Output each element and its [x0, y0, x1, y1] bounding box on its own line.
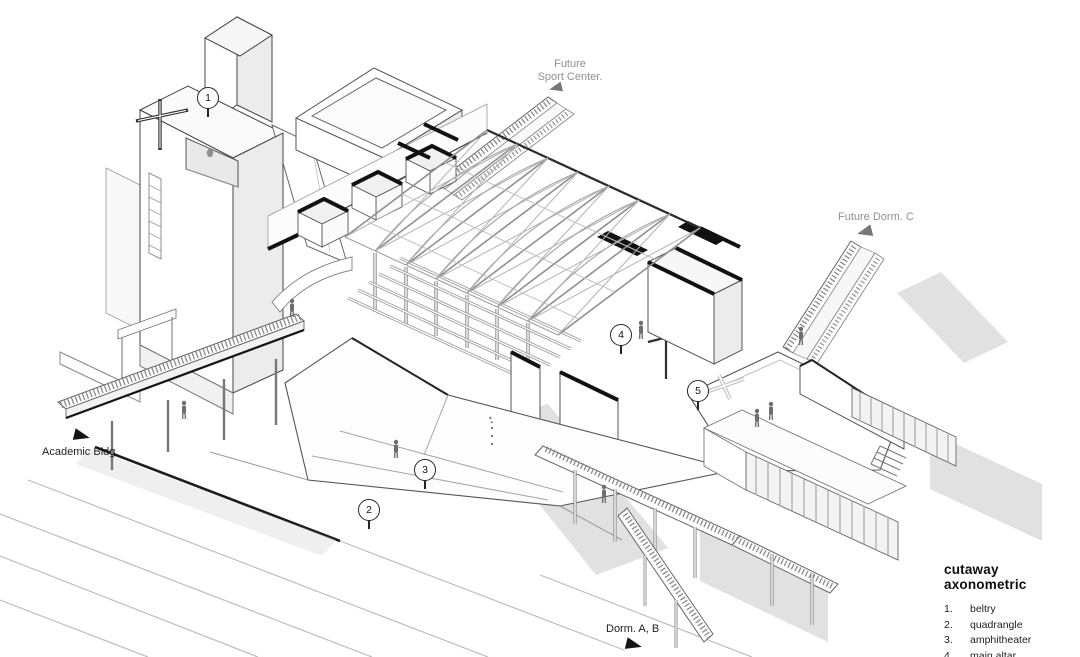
legend-item: 4. main altar	[944, 650, 1078, 657]
legend-item-number: 4.	[944, 650, 970, 657]
label-line: Dorm. A, B	[606, 623, 659, 635]
marker-number: 3	[422, 464, 428, 476]
callout-marker-quadrangle: 2	[358, 499, 380, 521]
legend-item-label: quadrangle	[970, 619, 1023, 631]
legend-item-label: main altar	[970, 650, 1016, 657]
sacristy-volume	[648, 248, 742, 364]
label-line: Future	[554, 58, 586, 70]
marker-number: 5	[695, 385, 701, 397]
label-future-sport-center: FutureSport Center.	[515, 58, 625, 84]
legend-item: 3. amphitheater	[944, 634, 1078, 646]
label-academic-bldg: Academic Bldg.	[42, 446, 118, 459]
legend-item-number: 2.	[944, 619, 970, 631]
tower-ladder	[149, 173, 161, 259]
label-line: Sport Center.	[538, 71, 603, 83]
callout-marker-main-altar: 4	[610, 324, 632, 346]
legend-item: 1. beltry	[944, 603, 1078, 615]
legend: cutaway axonometric 1. beltry 2. quadran…	[944, 562, 1078, 657]
bell-icon	[207, 149, 213, 157]
label-future-dorm-c: Future Dorm. C	[838, 211, 914, 224]
legend-item: 2. quadrangle	[944, 619, 1078, 631]
bridge-dorm-c	[783, 241, 884, 365]
callout-marker-amphitheater: 3	[414, 459, 436, 481]
legend-item-label: beltry	[970, 603, 996, 615]
axonometric-drawing	[0, 0, 1080, 657]
legend-item-number: 1.	[944, 603, 970, 615]
label-dorm-ab: Dorm. A, B	[606, 623, 659, 636]
marker-number: 2	[366, 504, 372, 516]
marker-number: 1	[205, 92, 211, 104]
label-line: Academic Bldg.	[42, 446, 118, 458]
legend-item-label: amphitheater	[970, 634, 1031, 646]
callout-marker-belfry: 1	[197, 87, 219, 109]
axonometric-sheet: 1 2 3 4 5 FutureSport Center. Future Dor…	[0, 0, 1080, 657]
callout-marker-outdoor-altar: 5	[687, 380, 709, 402]
label-line: Future Dorm. C	[838, 211, 914, 223]
outdoor-altar-platform	[688, 352, 956, 560]
amphitheater	[285, 338, 735, 506]
marker-number: 4	[618, 329, 624, 341]
legend-item-number: 3.	[944, 634, 970, 646]
legend-title: cutaway axonometric	[944, 562, 1078, 592]
